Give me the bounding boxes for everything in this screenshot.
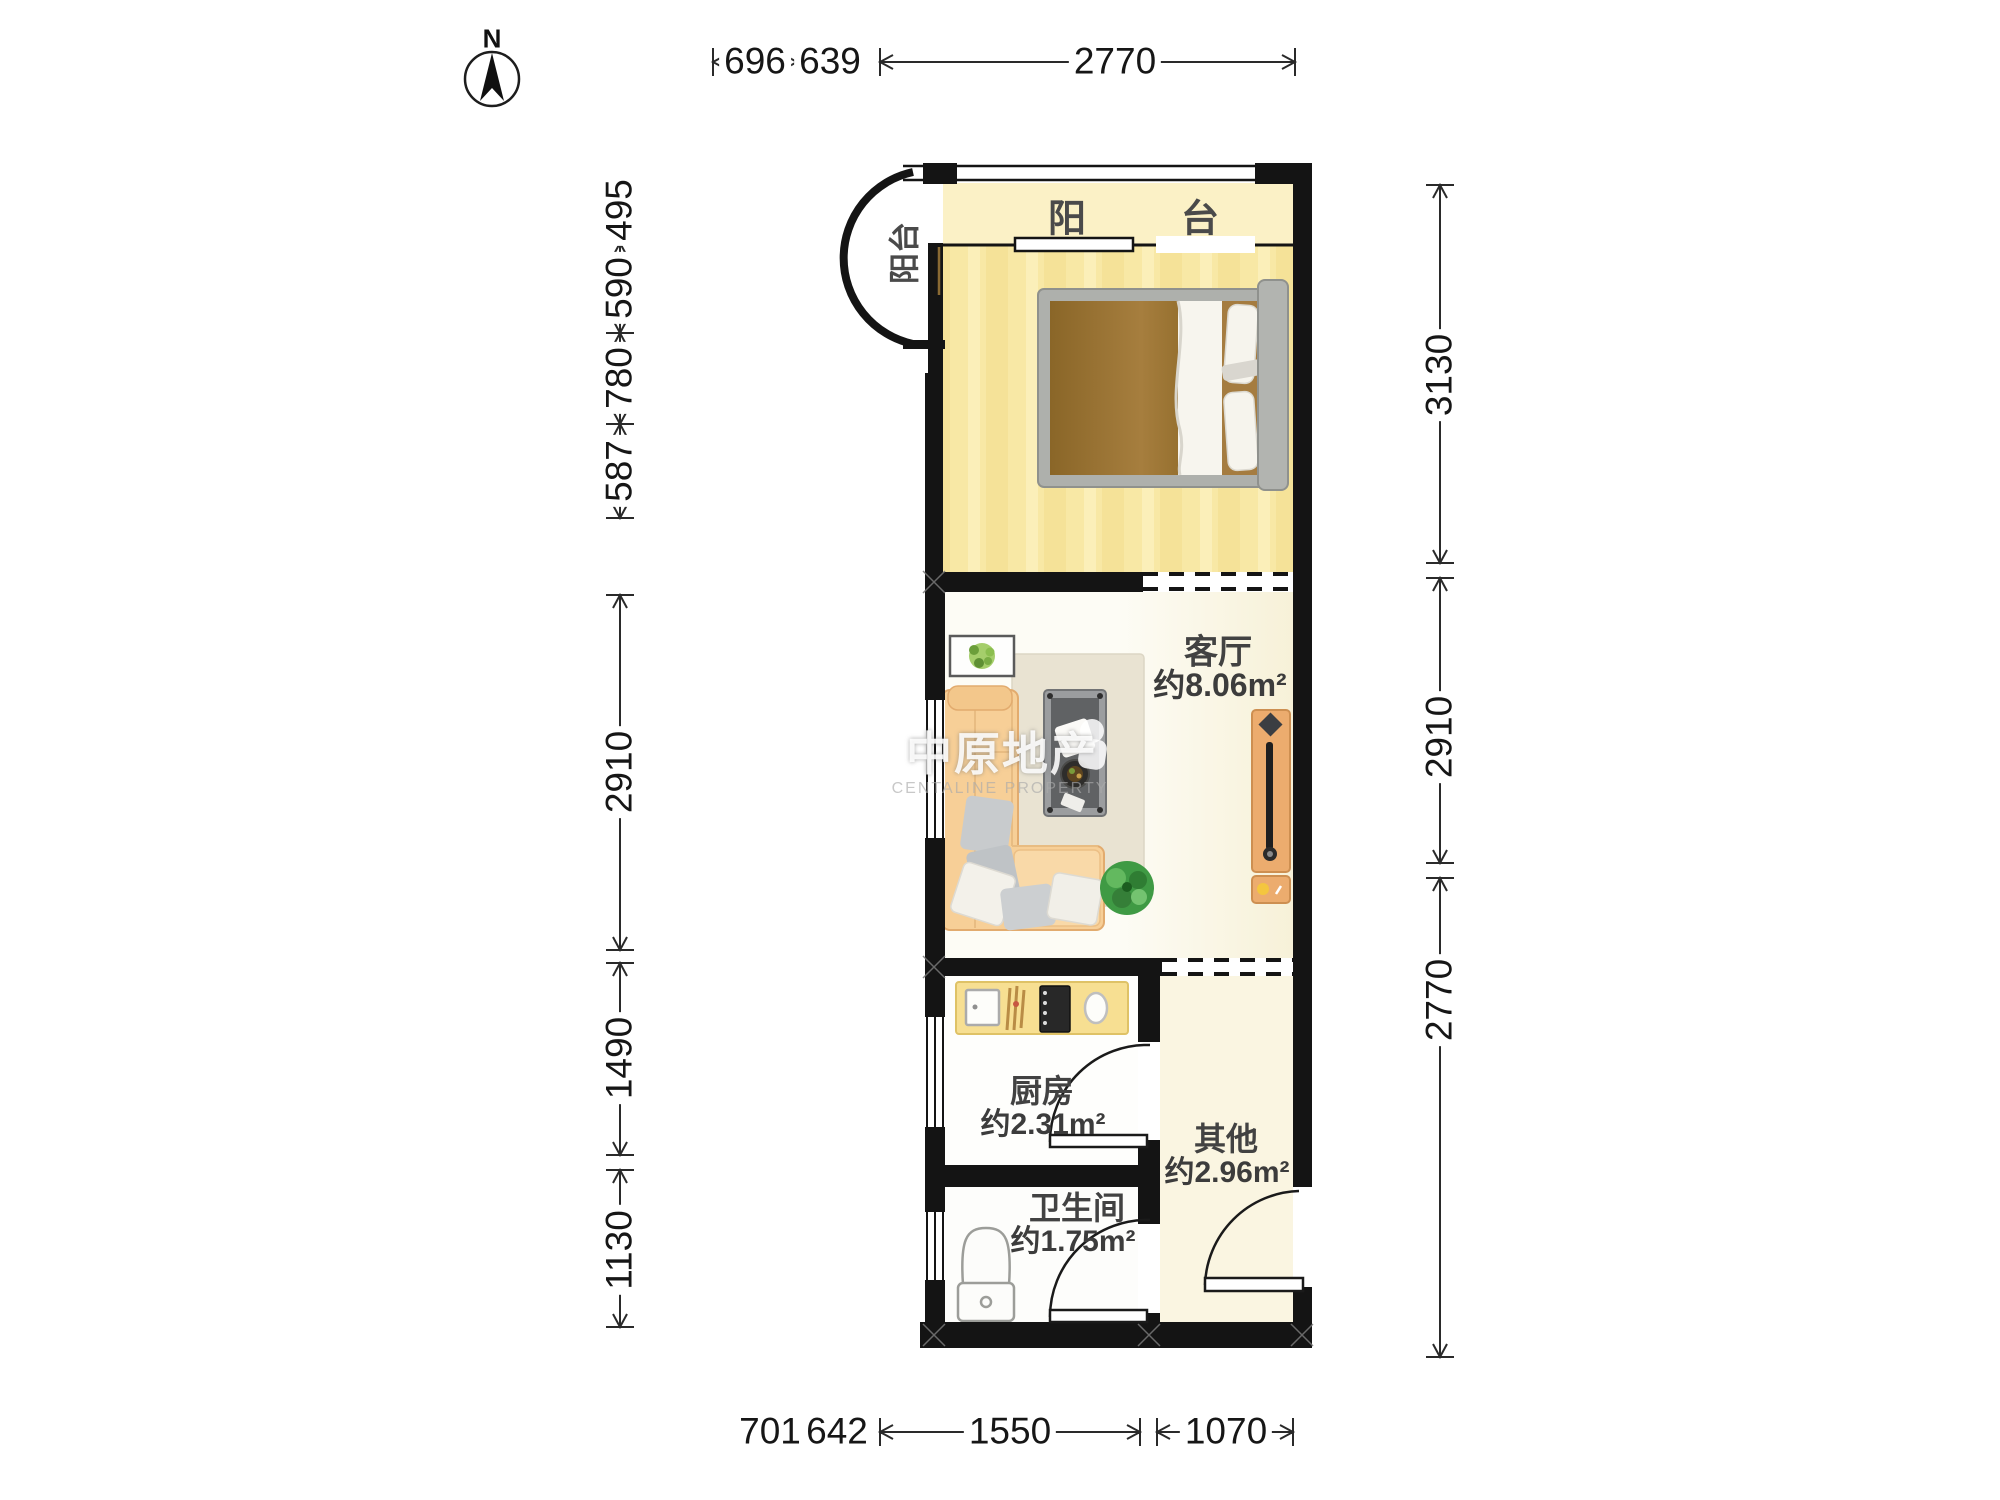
dim-left-4: 587 (601, 435, 640, 507)
side-table (950, 636, 1014, 676)
dim-right-1: 3130 (1421, 329, 1460, 421)
dim-right-2: 2910 (1421, 691, 1460, 783)
living-room-area: 约8.06m² (1153, 660, 1286, 706)
bedroom-living-wall (925, 572, 1143, 592)
floorplan-canvas: N 阳台 阳台 客厅 约8.06m² 厨房 约2.31m² 其他 约2.96m²… (0, 0, 2000, 1500)
kitchen-area: 约2.31m² (980, 1099, 1105, 1143)
dim-right-3: 2770 (1421, 954, 1460, 1046)
dim-bottom-4: 1070 (1180, 1413, 1272, 1452)
dim-left-2: 590 (601, 252, 640, 324)
right-wall-upper (1293, 163, 1312, 1187)
dim-left-1: 495 (601, 174, 640, 246)
dim-bottom-1: 701 (734, 1413, 806, 1452)
entrance-door-panel (1205, 1278, 1303, 1291)
dim-top-1: 696 (719, 43, 791, 82)
dim-bottom-3: 1550 (964, 1413, 1056, 1452)
floor-plant (1100, 861, 1154, 915)
dim-left-6: 1490 (601, 1012, 640, 1104)
dim-left-7: 1130 (601, 1205, 640, 1295)
balcony-top-label: 阳台 (1048, 188, 1314, 243)
balcony-side-label: 阳台 (880, 222, 925, 284)
watermark-en: CENTALINE PROPERTY (892, 780, 1109, 798)
white-cushion (1046, 872, 1103, 926)
bathroom-area: 约1.75m² (1010, 1216, 1135, 1260)
dim-top-2: 639 (794, 43, 866, 82)
basin (1085, 993, 1107, 1023)
bathroom-door-panel (1050, 1310, 1147, 1322)
living-kitchen-wall (925, 958, 1162, 976)
dim-top-3: 2770 (1069, 43, 1161, 82)
dim-bottom-2: 642 (801, 1413, 873, 1452)
compass (465, 52, 519, 106)
kitchen-counter (956, 982, 1128, 1034)
dim-left-3: 780 (601, 342, 640, 414)
toilet (958, 1228, 1014, 1321)
bed (1038, 280, 1288, 490)
dim-left-5: 2910 (601, 726, 640, 818)
sink (966, 990, 999, 1025)
headboard (1258, 280, 1288, 490)
compass-north-label: N (483, 24, 502, 55)
tv-screen (1266, 742, 1273, 850)
armrest (948, 686, 1012, 710)
bottom-wall (920, 1322, 1312, 1348)
watermark-cn: 中原地产 (906, 718, 1098, 784)
other-room-area: 约2.96m² (1164, 1147, 1289, 1191)
